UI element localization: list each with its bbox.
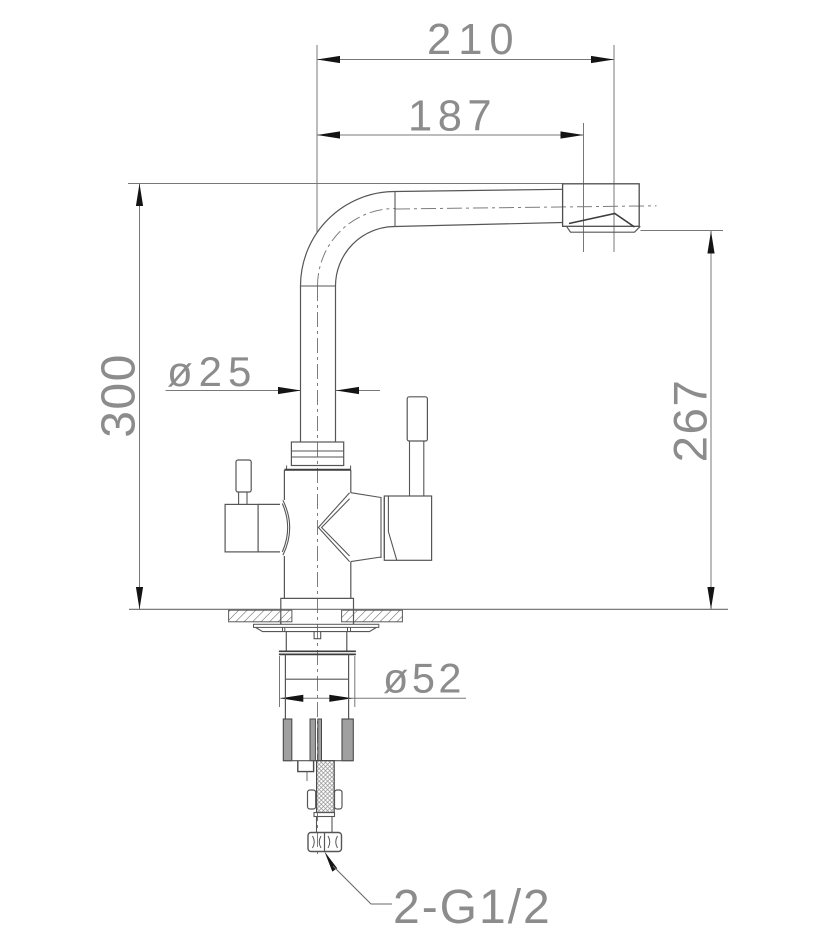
svg-text:ø52: ø52 [383,655,465,702]
svg-text:2-G1/2: 2-G1/2 [393,881,552,934]
svg-text:267: 267 [665,379,718,463]
svg-text:187: 187 [408,93,497,141]
svg-text:210: 210 [427,16,521,64]
svg-text:300: 300 [93,353,146,438]
svg-text:ø25: ø25 [167,348,257,395]
